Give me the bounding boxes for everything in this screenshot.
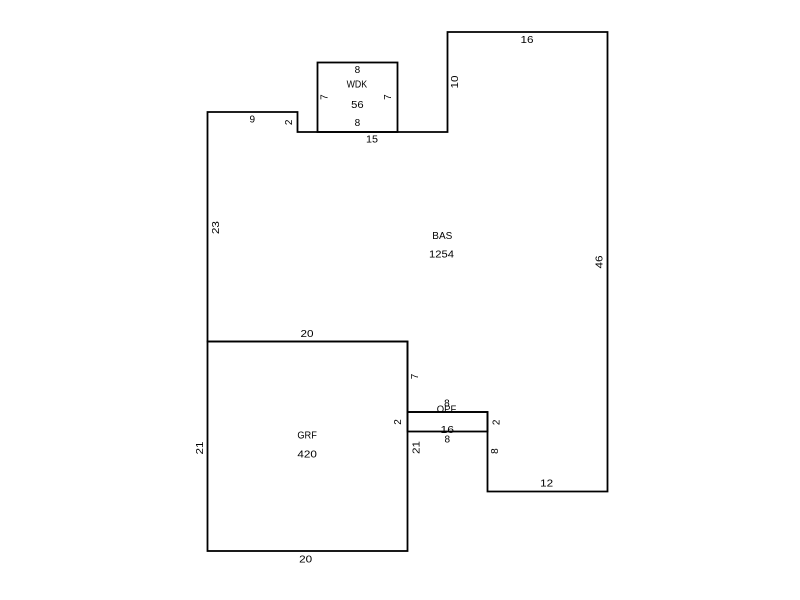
svg-text:7: 7 <box>320 94 331 100</box>
svg-text:21: 21 <box>412 440 423 454</box>
svg-text:12: 12 <box>540 479 554 490</box>
svg-text:8: 8 <box>355 65 361 76</box>
svg-text:GRF: GRF <box>297 430 317 441</box>
svg-text:23: 23 <box>211 221 222 235</box>
svg-text:420: 420 <box>297 450 317 461</box>
svg-text:56: 56 <box>351 100 364 111</box>
svg-text:OPF: OPF <box>437 405 457 416</box>
svg-text:WDK: WDK <box>347 80 368 91</box>
svg-text:20: 20 <box>299 555 313 566</box>
svg-text:15: 15 <box>366 135 378 146</box>
svg-text:46: 46 <box>595 255 606 269</box>
svg-text:2: 2 <box>491 419 502 425</box>
svg-text:20: 20 <box>301 329 315 340</box>
svg-text:10: 10 <box>450 75 461 89</box>
svg-text:16: 16 <box>521 35 535 46</box>
svg-text:BAS: BAS <box>432 231 452 242</box>
svg-text:7: 7 <box>410 373 421 379</box>
svg-text:8: 8 <box>490 448 501 454</box>
svg-text:8: 8 <box>445 435 451 446</box>
svg-text:8: 8 <box>355 118 361 129</box>
svg-text:1254: 1254 <box>429 250 454 261</box>
svg-text:21: 21 <box>195 441 206 455</box>
svg-text:9: 9 <box>250 115 256 126</box>
svg-text:2: 2 <box>284 119 295 125</box>
svg-text:7: 7 <box>383 94 394 100</box>
svg-text:2: 2 <box>393 419 404 425</box>
